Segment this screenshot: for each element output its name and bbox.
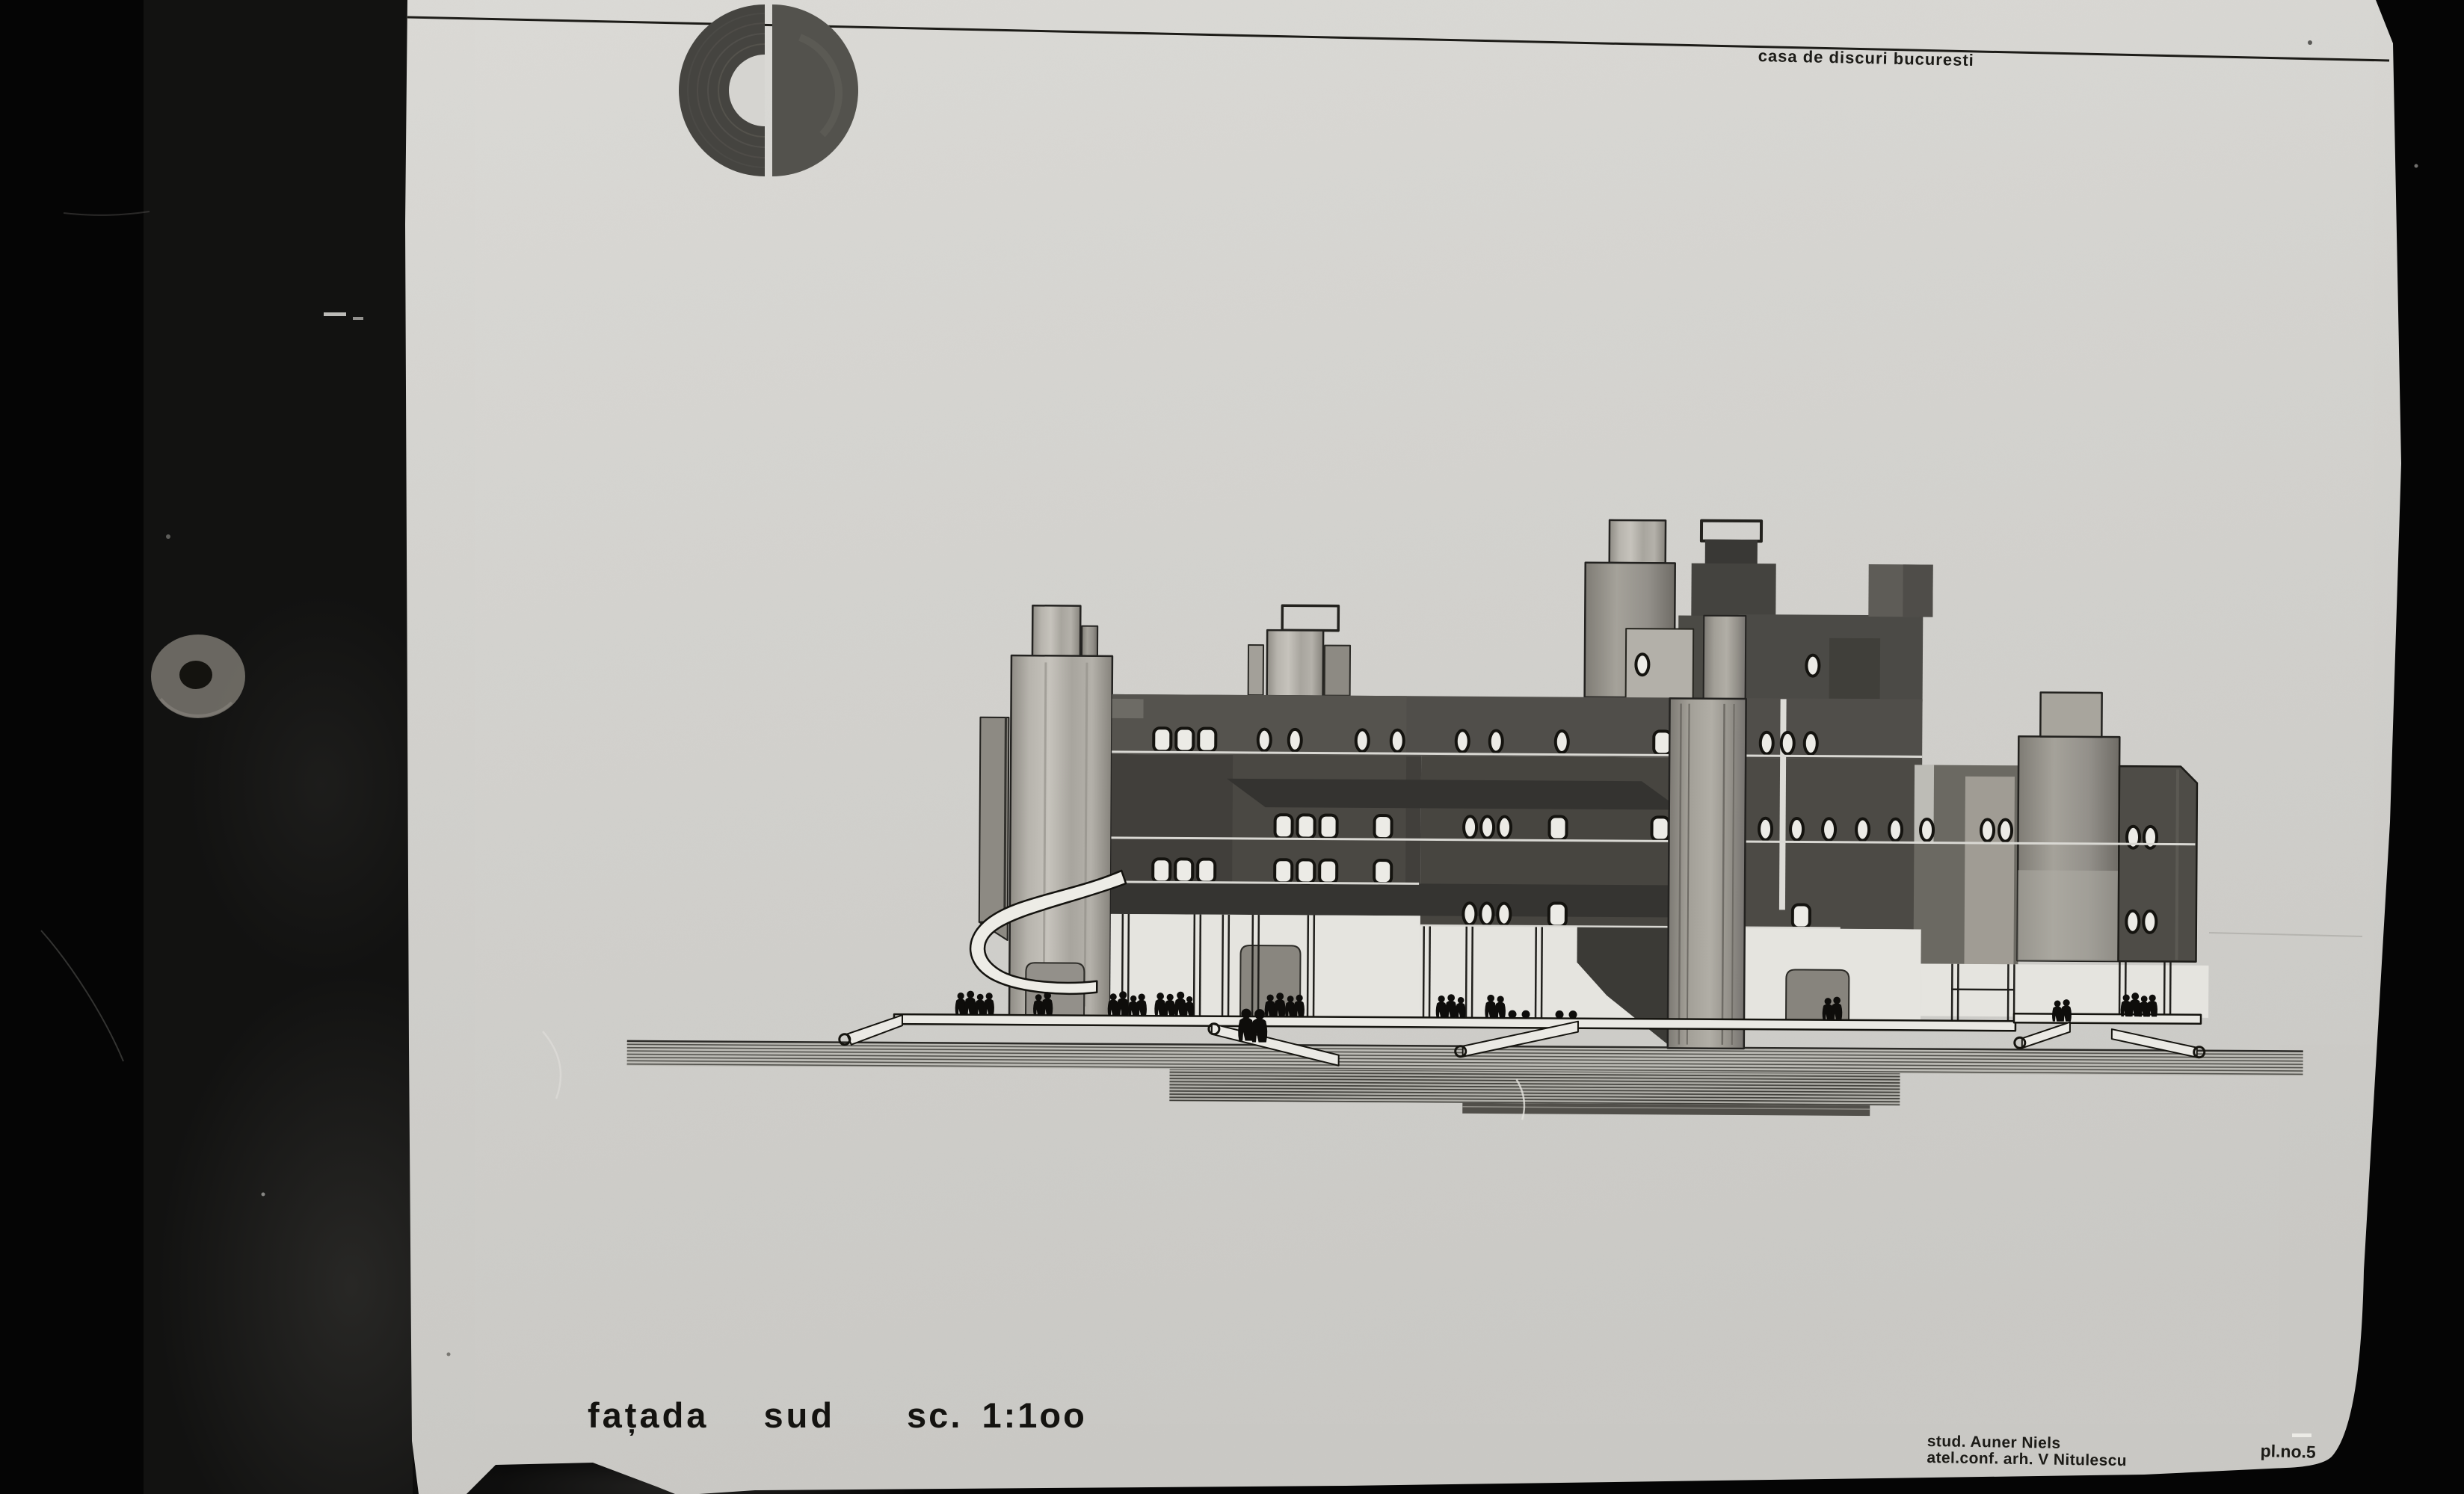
credit-professor: atel.conf. arh. V Nitulescu: [1926, 1450, 2127, 1469]
drawing-title-text: fațada sud: [588, 1395, 835, 1435]
credits-block: stud. Auner Niels atel.conf. arh. V Nitu…: [1926, 1433, 2127, 1469]
left-stair-cylinder: [1009, 605, 1112, 1016]
main-slab-band-upper: [1112, 694, 1922, 759]
drawing-scale-label: sc. 1:1oo: [907, 1395, 1087, 1435]
floor-beam: [1111, 882, 1723, 918]
washer-blob: [151, 635, 245, 718]
left-wall-panel: [979, 717, 1009, 940]
photograph: casa de discuri bucuresti fațada sudsc. …: [0, 0, 2464, 1494]
plate-number: pl.no.5: [2260, 1441, 2316, 1463]
elevation-drawing: [0, 0, 2464, 1494]
drawing-title: fațada sudsc. 1:1oo: [588, 1395, 1087, 1436]
balcony-slab: [1227, 779, 1681, 810]
